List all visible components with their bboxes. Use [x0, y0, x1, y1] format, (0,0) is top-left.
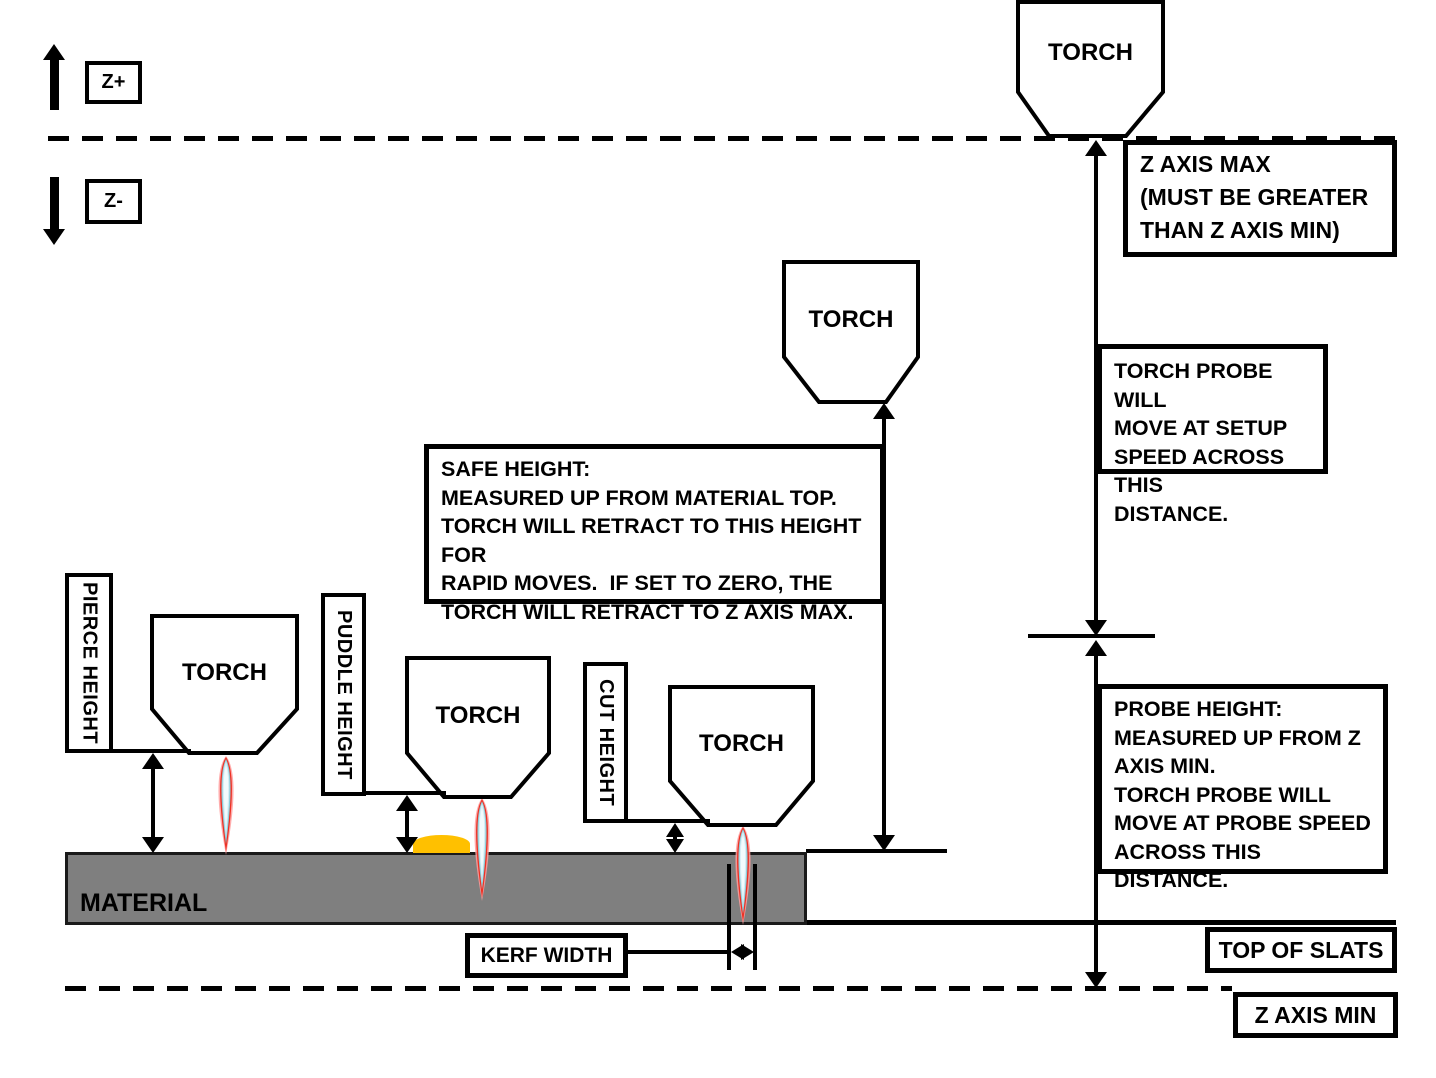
pierce-height-box: PIERCE HEIGHT: [65, 573, 113, 753]
z-axis-min-box: Z AXIS MIN: [1233, 992, 1398, 1038]
probe-height-text: PROBE HEIGHT: MEASURED UP FROM Z AXIS MI…: [1102, 689, 1383, 901]
pierce-arrow-down-icon: [142, 837, 164, 853]
pierce-flame-icon: [207, 755, 245, 856]
puddle-flame-icon: [463, 797, 501, 902]
z-plus-label-box: Z+: [85, 61, 142, 104]
top-of-slats-line: [804, 920, 1396, 925]
torch-label: TORCH: [150, 659, 299, 687]
torch-puddle: TORCH: [405, 656, 551, 799]
setup-speed-text: TORCH PROBE WILL MOVE AT SETUP SPEED ACR…: [1102, 349, 1323, 536]
puddle-arrow-down-icon: [396, 837, 418, 853]
z-axis-max-text: Z AXIS MAX (MUST BE GREATER THAN Z AXIS …: [1128, 145, 1392, 250]
z-axis-min-line: [65, 986, 1232, 991]
z-axis-max-box: Z AXIS MAX (MUST BE GREATER THAN Z AXIS …: [1123, 140, 1397, 257]
kerf-arrow-right-icon: [741, 944, 754, 960]
cut-flame-icon: [724, 825, 762, 926]
z-axis-min-label: Z AXIS MIN: [1255, 1002, 1377, 1029]
top-of-slats-box: TOP OF SLATS: [1205, 927, 1397, 973]
torch-cut: TORCH: [668, 685, 815, 827]
kerf-width-label: KERF WIDTH: [481, 944, 613, 968]
torch-body: [1018, 2, 1163, 136]
safe-arrow-down-icon: [873, 835, 895, 851]
torch-safe-height: TORCH: [782, 260, 920, 404]
torch-height-diagram: Z+ Z- MATERIAL TORCH: [0, 0, 1436, 1078]
kerf-connector-line: [626, 950, 731, 954]
torch-label: TORCH: [1016, 39, 1165, 67]
puddle-height-label: PUDDLE HEIGHT: [332, 610, 355, 780]
torch-pierce: TORCH: [150, 614, 299, 755]
safe-height-text: SAFE HEIGHT: MEASURED UP FROM MATERIAL T…: [429, 449, 880, 632]
pierce-arrow-shaft: [151, 765, 155, 841]
z-minus-arrow-shaft: [50, 177, 59, 229]
torch-label: TORCH: [782, 306, 920, 334]
top-of-slats-label: TOP OF SLATS: [1219, 937, 1384, 964]
z-minus-arrow-icon: [43, 229, 65, 245]
cut-arrow-down-icon: [666, 839, 684, 853]
puddle-arrow-shaft: [405, 807, 409, 841]
torch-label: TORCH: [668, 730, 815, 758]
kerf-width-box: KERF WIDTH: [465, 933, 628, 978]
cut-height-box: CUT HEIGHT: [583, 662, 628, 823]
safe-height-box: SAFE HEIGHT: MEASURED UP FROM MATERIAL T…: [424, 444, 885, 604]
pierce-height-label: PIERCE HEIGHT: [78, 582, 101, 744]
setup-speed-box: TORCH PROBE WILL MOVE AT SETUP SPEED ACR…: [1097, 344, 1328, 474]
torch-label: TORCH: [405, 702, 551, 730]
probe-height-box: PROBE HEIGHT: MEASURED UP FROM Z AXIS MI…: [1097, 684, 1388, 874]
material-label: MATERIAL: [80, 889, 207, 918]
z-plus-arrow-shaft: [50, 58, 59, 110]
z-plus-label: Z+: [102, 71, 126, 94]
cut-height-label: CUT HEIGHT: [594, 679, 617, 806]
z-minus-label: Z-: [104, 190, 123, 213]
puddle-height-box: PUDDLE HEIGHT: [321, 593, 366, 796]
setup-arrow-down-icon: [1085, 620, 1107, 636]
torch-z-max: TORCH: [1016, 0, 1165, 138]
molten-puddle: [413, 835, 470, 853]
material-slab: MATERIAL: [65, 852, 807, 925]
z-minus-label-box: Z-: [85, 179, 142, 224]
probe-arrow-down-icon: [1085, 972, 1107, 988]
